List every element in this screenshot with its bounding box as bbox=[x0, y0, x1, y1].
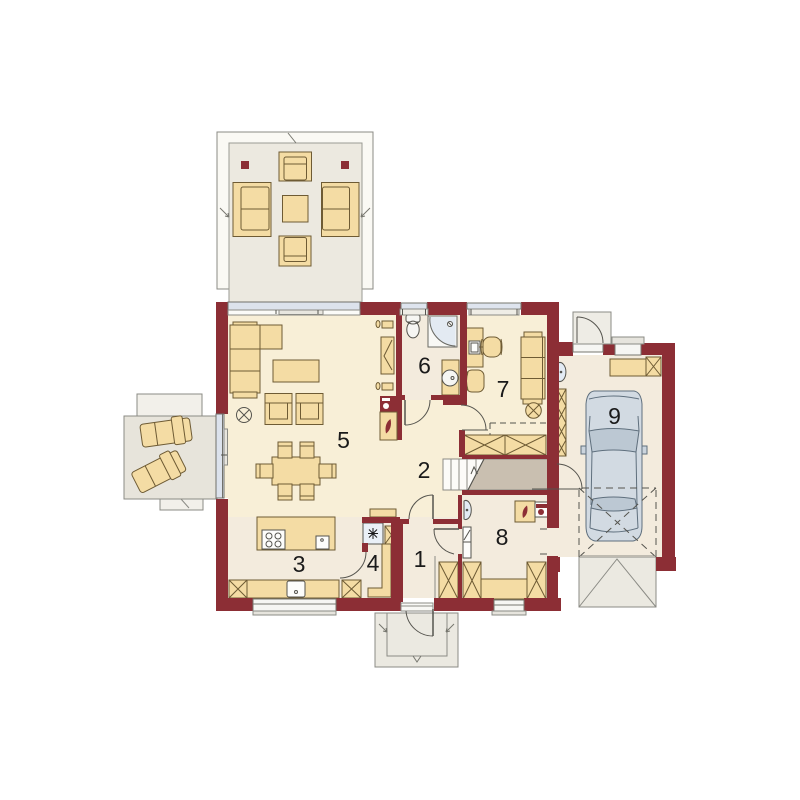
svg-text:2: 2 bbox=[418, 457, 431, 483]
svg-text:5: 5 bbox=[337, 427, 350, 453]
svg-text:3: 3 bbox=[293, 551, 306, 577]
svg-text:1: 1 bbox=[414, 546, 427, 572]
svg-text:6: 6 bbox=[418, 353, 431, 379]
svg-text:7: 7 bbox=[497, 376, 510, 402]
svg-text:8: 8 bbox=[496, 524, 509, 550]
svg-text:9: 9 bbox=[608, 403, 621, 429]
svg-text:4: 4 bbox=[367, 550, 380, 576]
